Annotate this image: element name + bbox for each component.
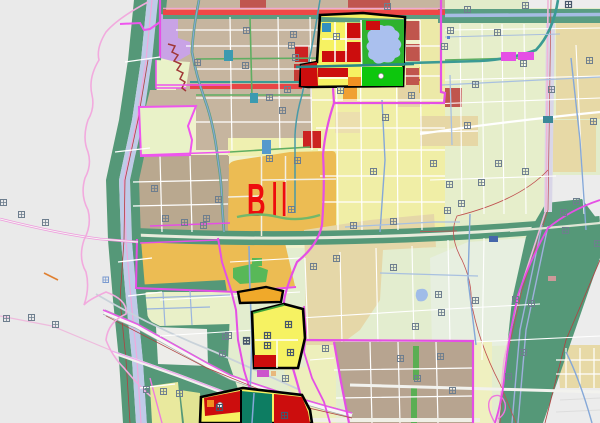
svg-text:B: B (247, 174, 266, 226)
